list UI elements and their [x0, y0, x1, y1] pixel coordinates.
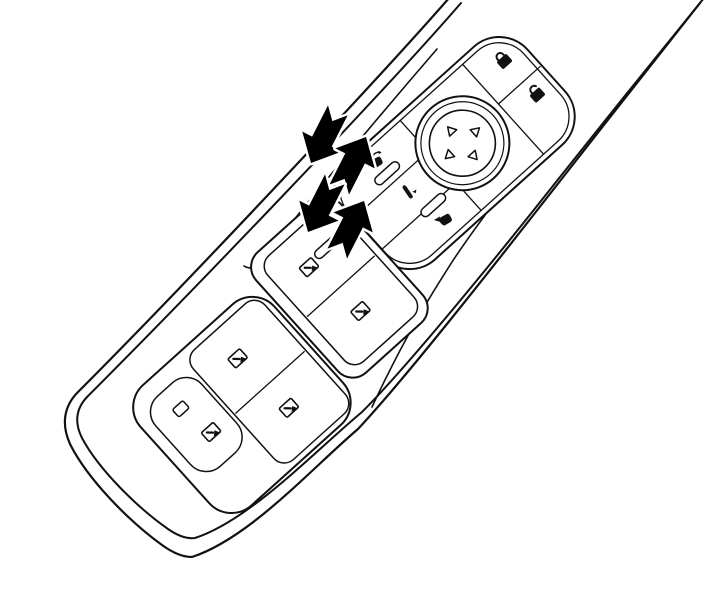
- illustration-canvas: [0, 0, 722, 592]
- control-cluster-rotated-group: [101, 21, 631, 525]
- door-switch-illustration: [0, 0, 722, 592]
